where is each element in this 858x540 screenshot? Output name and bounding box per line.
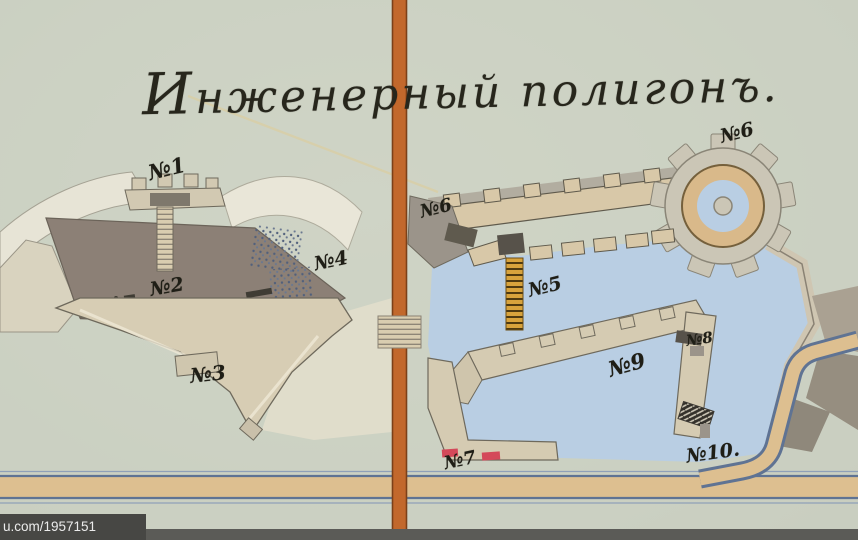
red-marker-right bbox=[482, 451, 501, 460]
gate-block bbox=[497, 233, 525, 256]
map-title: Инженерный полигонъ. bbox=[141, 50, 742, 129]
map-canvas: Инженерный полигонъ. №1 №2 №3 №4 №5 №6 №… bbox=[0, 0, 858, 540]
label-n3: №3 bbox=[189, 360, 227, 388]
dotted-patch-upper bbox=[249, 225, 302, 273]
gold-ladder bbox=[506, 258, 523, 330]
battery-post bbox=[700, 424, 710, 438]
watermark: u.com/1957151 bbox=[0, 514, 146, 540]
label-n8: №8 bbox=[685, 328, 714, 350]
dotted-patch-lower bbox=[269, 267, 313, 300]
left-fort-ramp-ladder bbox=[157, 207, 173, 271]
fold-bridge bbox=[378, 316, 421, 348]
